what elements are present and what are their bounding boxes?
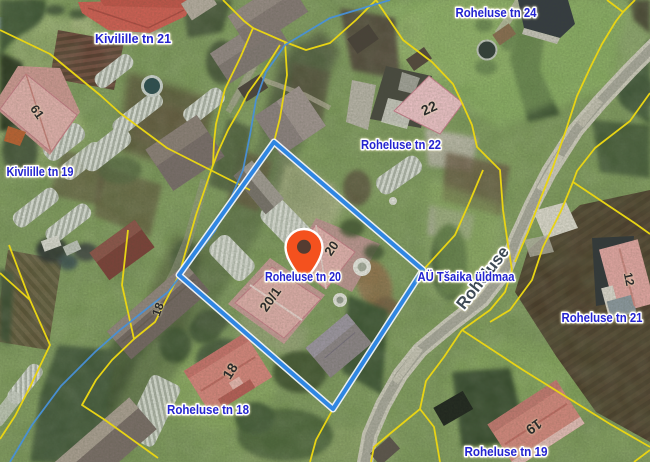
svg-text:Kivilille tn 19: Kivilille tn 19: [7, 165, 74, 179]
svg-text:Roheluse tn 20: Roheluse tn 20: [265, 270, 341, 284]
svg-text:Roheluse tn 22: Roheluse tn 22: [361, 138, 441, 152]
svg-text:AÜ Tšaika üldmaa: AÜ Tšaika üldmaa: [418, 269, 516, 284]
svg-text:Roheluse tn 19: Roheluse tn 19: [465, 445, 548, 459]
svg-text:Roheluse tn 21: Roheluse tn 21: [562, 311, 643, 325]
svg-text:Roheluse tn 18: Roheluse tn 18: [167, 403, 249, 417]
svg-text:Kivilille tn 21: Kivilille tn 21: [95, 32, 171, 46]
svg-text:Roheluse tn 24: Roheluse tn 24: [456, 6, 537, 20]
